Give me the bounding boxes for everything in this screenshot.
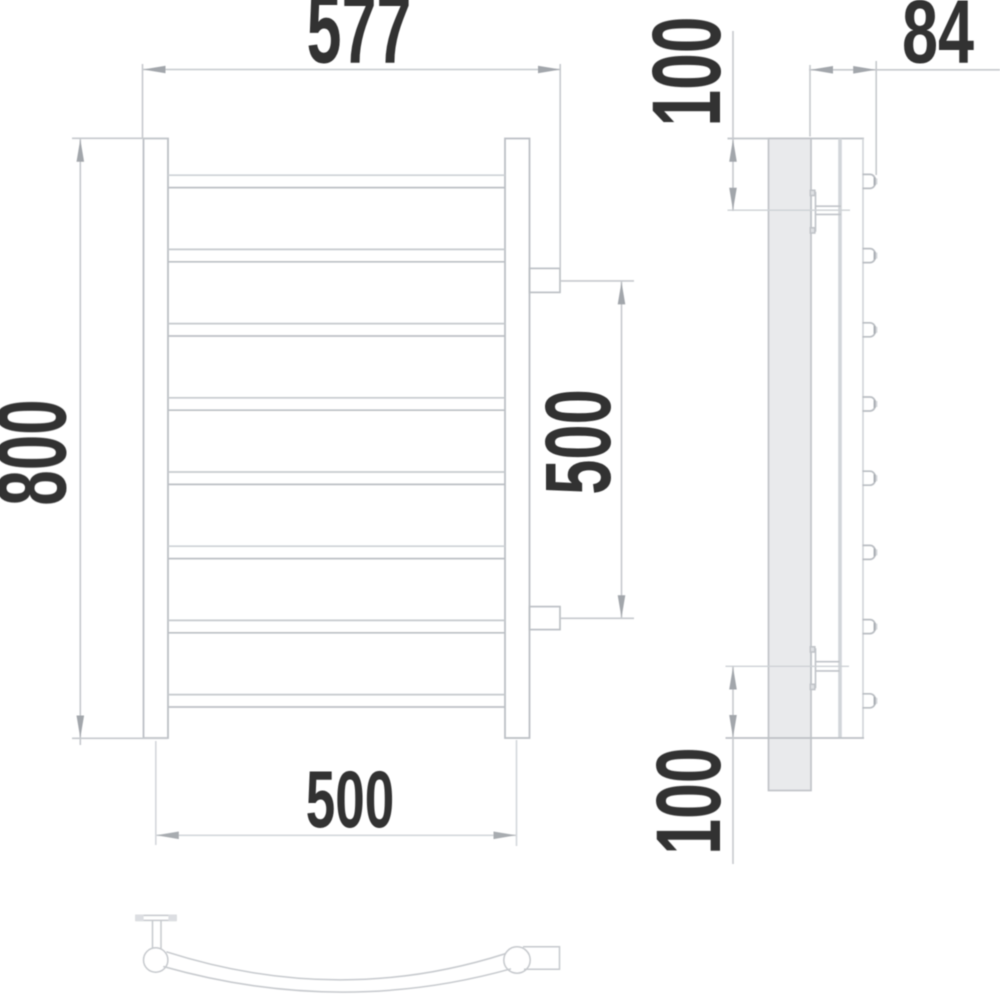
svg-text:800: 800: [0, 399, 87, 505]
svg-text:100: 100: [632, 16, 741, 126]
svg-text:500: 500: [306, 754, 395, 845]
svg-text:500: 500: [526, 389, 630, 495]
svg-text:100: 100: [637, 747, 740, 854]
svg-text:84: 84: [902, 0, 974, 82]
svg-text:577: 577: [307, 0, 412, 84]
